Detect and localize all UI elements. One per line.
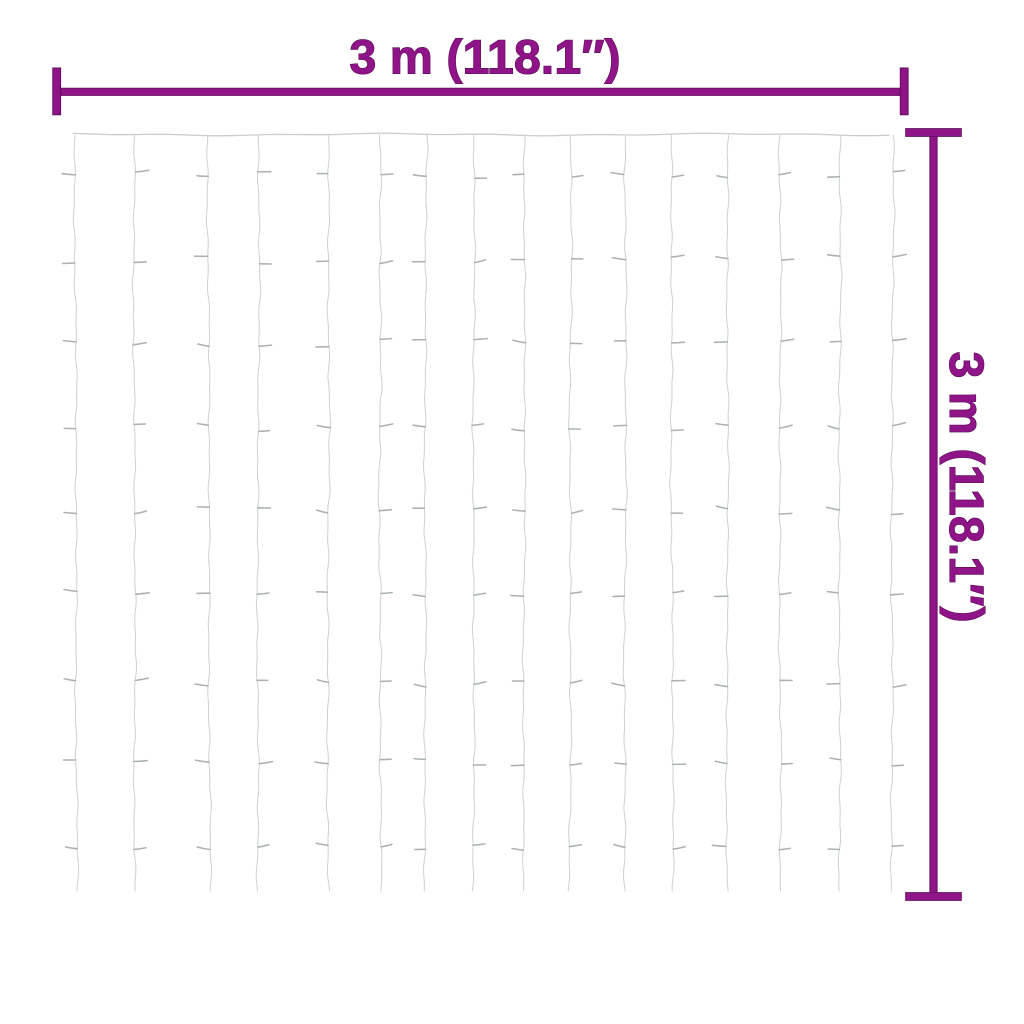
svg-text:3 m (118.1″): 3 m (118.1″) bbox=[939, 351, 993, 622]
svg-text:3 m (118.1″): 3 m (118.1″) bbox=[349, 31, 620, 85]
